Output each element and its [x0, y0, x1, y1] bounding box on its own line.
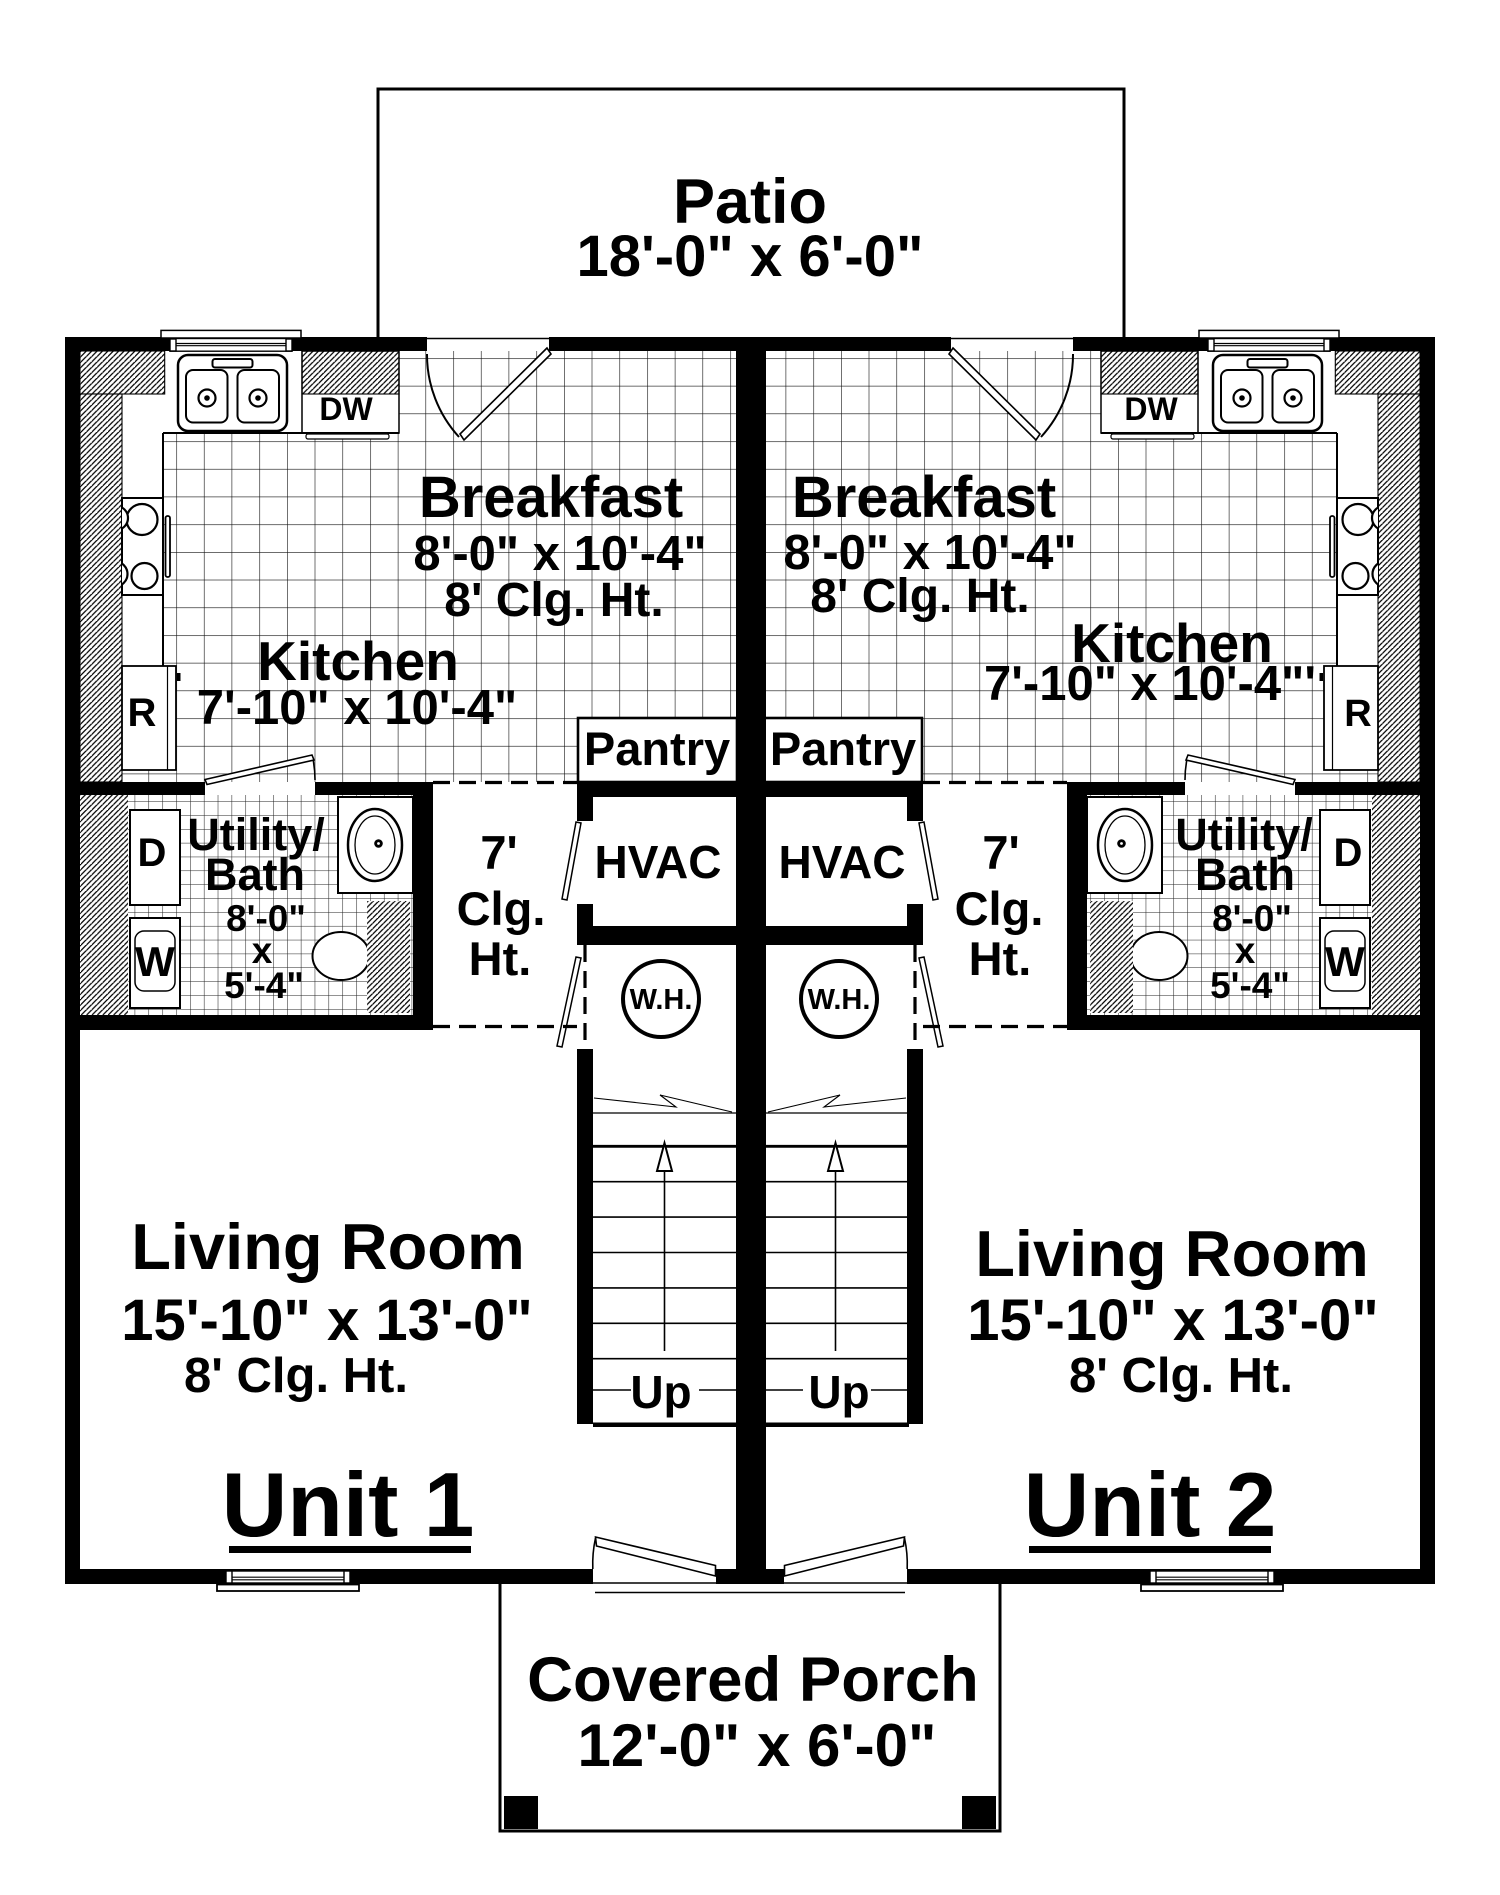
- svg-text:Ht.: Ht.: [969, 932, 1032, 985]
- svg-text:DW: DW: [319, 391, 373, 427]
- svg-text:D: D: [1334, 831, 1363, 875]
- svg-text:R: R: [1344, 693, 1371, 735]
- svg-text:8' Clg. Ht.: 8' Clg. Ht.: [444, 574, 663, 627]
- svg-text:Living Room: Living Room: [975, 1217, 1369, 1290]
- svg-text:Up: Up: [630, 1366, 691, 1418]
- svg-text:Breakfast: Breakfast: [792, 465, 1056, 530]
- svg-text:Covered Porch: Covered Porch: [527, 1645, 979, 1715]
- svg-text:W: W: [1325, 938, 1365, 985]
- svg-text:7'-10" x 10'-4"': 7'-10" x 10'-4"': [984, 657, 1316, 711]
- svg-text:7': 7': [982, 826, 1019, 879]
- svg-text:Breakfast: Breakfast: [419, 465, 683, 530]
- svg-text:15'-10" x 13'-0": 15'-10" x 13'-0": [967, 1288, 1379, 1353]
- svg-text:R: R: [128, 691, 157, 735]
- svg-text:5'-4": 5'-4": [224, 965, 304, 1006]
- svg-text:Pantry: Pantry: [584, 722, 730, 775]
- svg-text:D: D: [138, 831, 167, 875]
- svg-text:8' Clg. Ht.: 8' Clg. Ht.: [1069, 1349, 1293, 1403]
- svg-text:W: W: [135, 938, 175, 985]
- svg-text:Bath: Bath: [205, 849, 305, 900]
- svg-text:Up: Up: [808, 1366, 869, 1418]
- svg-text:Unit 1: Unit 1: [222, 1455, 475, 1556]
- svg-text:W.H.: W.H.: [808, 984, 871, 1016]
- svg-text:8' Clg. Ht.: 8' Clg. Ht.: [810, 570, 1029, 623]
- svg-text:Pantry: Pantry: [770, 722, 916, 775]
- svg-text:18'-0" x 6'-0": 18'-0" x 6'-0": [577, 224, 924, 289]
- svg-text:8' Clg. Ht.: 8' Clg. Ht.: [184, 1349, 408, 1403]
- svg-text:Living Room: Living Room: [131, 1210, 525, 1283]
- svg-text:Clg.: Clg.: [457, 882, 546, 935]
- svg-text:Clg.: Clg.: [955, 882, 1044, 935]
- svg-text:W.H.: W.H.: [630, 984, 693, 1016]
- svg-text:12'-0" x 6'-0": 12'-0" x 6'-0": [578, 1712, 937, 1779]
- svg-text:HVAC: HVAC: [779, 836, 906, 888]
- svg-text:Unit 2: Unit 2: [1024, 1455, 1277, 1556]
- svg-text:Bath: Bath: [1195, 849, 1295, 900]
- svg-text:8'-0" x 10'-4": 8'-0" x 10'-4": [413, 527, 706, 581]
- svg-text:HVAC: HVAC: [595, 836, 722, 888]
- svg-text:7': 7': [480, 826, 517, 879]
- svg-text:Ht.: Ht.: [469, 932, 532, 985]
- svg-text:5'-4": 5'-4": [1210, 965, 1290, 1006]
- svg-text:15'-10" x 13'-0": 15'-10" x 13'-0": [121, 1288, 533, 1353]
- svg-text:7'-10" x 10'-4": 7'-10" x 10'-4": [197, 681, 517, 735]
- svg-text:DW: DW: [1124, 391, 1178, 427]
